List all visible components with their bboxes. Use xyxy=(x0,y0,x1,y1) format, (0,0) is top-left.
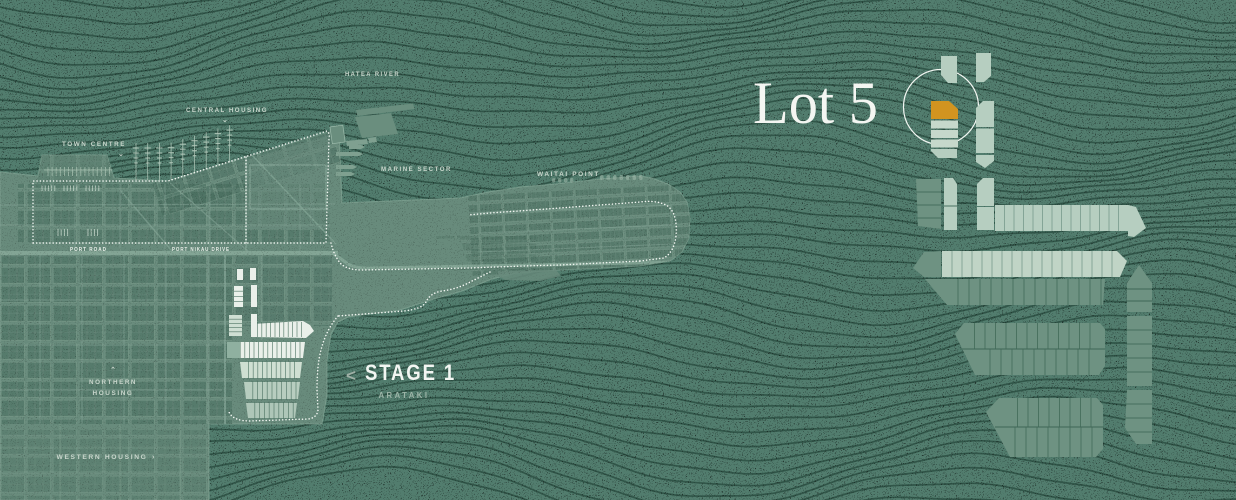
svg-text:CENTRAL HOUSING: CENTRAL HOUSING xyxy=(186,107,268,114)
svg-text:NORTHERN: NORTHERN xyxy=(89,379,137,386)
svg-text:STAGE 1: STAGE 1 xyxy=(365,360,456,385)
svg-text:<: < xyxy=(346,366,356,385)
svg-text:MARINE SECTOR: MARINE SECTOR xyxy=(381,166,452,173)
svg-text:⌃: ⌃ xyxy=(110,366,116,374)
svg-text:ARATAKI: ARATAKI xyxy=(379,391,430,400)
svg-text:TOWN CENTRE: TOWN CENTRE xyxy=(62,141,126,148)
svg-text:HOUSING: HOUSING xyxy=(93,390,134,397)
svg-text:⌄: ⌄ xyxy=(222,117,228,124)
svg-text:HATEA RIVER: HATEA RIVER xyxy=(345,71,400,78)
svg-text:⌄: ⌄ xyxy=(118,151,124,158)
svg-text:WAITAI POINT: WAITAI POINT xyxy=(537,171,600,178)
svg-text:WESTERN HOUSING: WESTERN HOUSING xyxy=(57,454,148,461)
svg-text:Lot 5: Lot 5 xyxy=(753,70,878,136)
svg-text:PORT ROAD: PORT ROAD xyxy=(70,247,107,253)
svg-text:PORT NIKAU DRIVE: PORT NIKAU DRIVE xyxy=(172,247,230,253)
